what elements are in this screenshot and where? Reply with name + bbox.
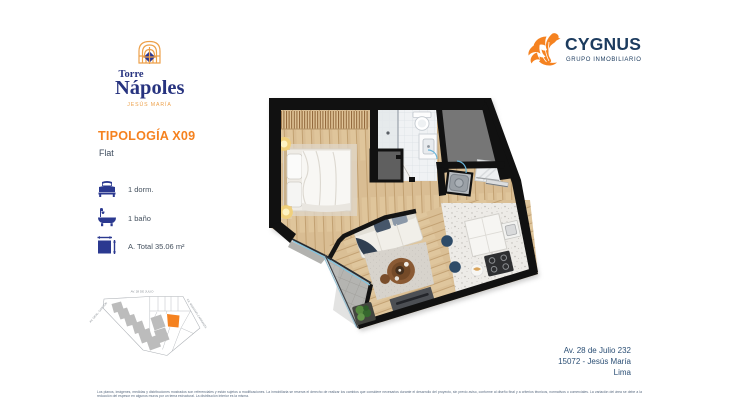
svg-text:Nápoles: Nápoles — [115, 77, 185, 99]
svg-text:JESÚS MARÍA: JESÚS MARÍA — [127, 101, 172, 108]
svg-text:CYGNUS: CYGNUS — [565, 34, 641, 54]
svg-text:AV. 28 DE JULIO: AV. 28 DE JULIO — [131, 290, 155, 294]
svg-text:AV. GRAL. GARZON: AV. GRAL. GARZON — [88, 301, 108, 323]
svg-text:GRUPO INMOBILIARIO: GRUPO INMOBILIARIO — [566, 57, 641, 63]
